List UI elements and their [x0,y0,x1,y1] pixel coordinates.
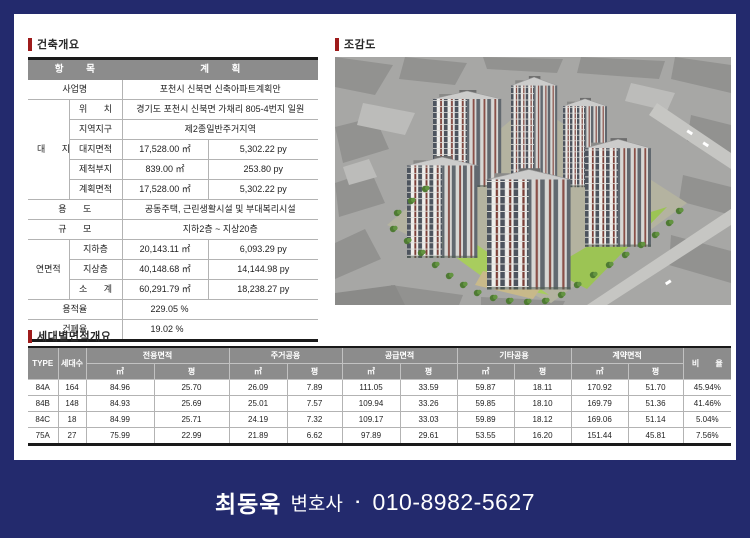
header-other-common: 기타공용 [457,347,571,364]
group-label-site: 대 지 [28,100,69,200]
cell-type: 84B [28,396,58,412]
table-row: 84C 18 84.99 25.71 24.19 7.32 109.17 33.… [28,412,731,428]
cell: 33.26 [400,396,457,412]
cell: 6.62 [287,428,342,445]
rendering-section-title: 조감도 [335,36,376,52]
red-accent-bar-icon [28,38,32,51]
row-value-py: 5,302.22 py [208,140,318,160]
cell: 25.01 [229,396,287,412]
row-value: 경기도 포천시 신북면 가채리 805-4번지 일원 [122,100,318,120]
table-row: 사업명 포천시 신북면 신축아파트계획안 [28,80,318,100]
row-label: 제척부지 [69,160,122,180]
table-header-row: TYPE 세대수 전용면적 주거공용 공급면적 기타공용 계약면적 비 율 [28,347,731,364]
table-subheader-row: ㎡ 평 ㎡ 평 ㎡ 평 ㎡ 평 ㎡ 평 [28,364,731,380]
footer-contact: 최동욱 변호사 ▪ 010-8982-5627 [0,480,750,524]
contact-name: 최동욱 [215,485,281,519]
table-row: 연면적 지하층 20,143.11 ㎡ 6,093.29 py [28,240,318,260]
cell: 59.85 [457,396,514,412]
cell-type: 75A [28,428,58,445]
unit-area-title-text: 세대별면적개요 [37,328,111,344]
row-value-py: 5,302.22 py [208,180,318,200]
cell: 18.10 [514,396,571,412]
cell: 84.96 [86,380,154,396]
row-value-m2: 60,291.79 ㎡ [122,280,208,300]
square-bullet-icon: ▪ [356,498,360,508]
flyer-page: { "sections": { "building_overview_title… [0,0,750,538]
aerial-rendering-image [335,57,731,305]
cell-households: 27 [58,428,86,445]
cell: 51.36 [628,396,683,412]
row-value-py: 6,093.29 py [208,240,318,260]
building-overview-title-text: 건축개요 [37,36,79,52]
cell: 22.99 [154,428,229,445]
table-row: 용 도 공동주택, 근린생활시설 및 부대복리시설 [28,200,318,220]
row-value: 19.02 % [122,320,318,341]
cell: 109.94 [342,396,400,412]
row-value-m2: 17,528.00 ㎡ [122,140,208,160]
table-row: 지상층 40,148.68 ㎡ 14,144.98 py [28,260,318,280]
row-label: 용적율 [28,300,122,320]
table-row: 규 모 지하2층 ~ 지상20층 [28,220,318,240]
header-plan: 계 획 [122,59,318,80]
table-row: 지역지구 제2종일반주거지역 [28,120,318,140]
red-accent-bar-icon [28,330,32,343]
cell-type: 84C [28,412,58,428]
cell: 111.05 [342,380,400,396]
contact-job-title: 변호사 [290,489,342,516]
red-accent-bar-icon [335,38,339,51]
subheader-py: 평 [400,364,457,380]
cell: 59.89 [457,412,514,428]
row-label: 지하층 [69,240,122,260]
row-value: 포천시 신북면 신축아파트계획안 [122,80,318,100]
aerial-rendering-svg [335,57,731,305]
row-value: 지하2층 ~ 지상20층 [122,220,318,240]
row-value: 229.05 % [122,300,318,320]
cell: 7.32 [287,412,342,428]
cell: 84.93 [86,396,154,412]
cell-ratio: 5.04% [683,412,731,428]
cell: 97.89 [342,428,400,445]
cell-ratio: 7.56% [683,428,731,445]
cell: 29.61 [400,428,457,445]
cell-households: 18 [58,412,86,428]
subheader-py: 평 [514,364,571,380]
row-label: 지역지구 [69,120,122,140]
row-value-m2: 40,148.68 ㎡ [122,260,208,280]
table-row: 용적율 229.05 % [28,300,318,320]
row-label: 위 치 [69,100,122,120]
subheader-py: 평 [628,364,683,380]
cell: 51.70 [628,380,683,396]
header-households: 세대수 [58,347,86,380]
row-value-m2: 20,143.11 ㎡ [122,240,208,260]
table-row: 계획면적 17,528.00 ㎡ 5,302.22 py [28,180,318,200]
header-residential-common: 주거공용 [229,347,342,364]
cell: 33.03 [400,412,457,428]
subheader-m2: ㎡ [571,364,628,380]
header-item: 항 목 [28,59,122,80]
unit-area-section-title: 세대별면적개요 [28,328,111,344]
table-row: 소 계 60,291.79 ㎡ 18,238.27 py [28,280,318,300]
header-contract: 계약면적 [571,347,683,364]
content-sheet: 건축개요 항 목 계 획 사업명 포천시 신북면 신축아파트계획안 대 지 위 … [14,14,736,460]
table-row: 84B 148 84.93 25.69 25.01 7.57 109.94 33… [28,396,731,412]
subheader-py: 평 [154,364,229,380]
cell: 84.99 [86,412,154,428]
cell-ratio: 45.94% [683,380,731,396]
row-label: 계획면적 [69,180,122,200]
cell: 24.19 [229,412,287,428]
row-value-py: 18,238.27 py [208,280,318,300]
row-label: 사업명 [28,80,122,100]
cell: 16.20 [514,428,571,445]
header-ratio: 비 율 [683,347,731,380]
cell: 169.06 [571,412,628,428]
cell: 25.70 [154,380,229,396]
unit-area-table: TYPE 세대수 전용면적 주거공용 공급면적 기타공용 계약면적 비 율 ㎡ … [28,346,731,446]
building-overview-section-title: 건축개요 [28,36,79,52]
cell: 109.17 [342,412,400,428]
table-row: 75A 27 75.99 22.99 21.89 6.62 97.89 29.6… [28,428,731,445]
cell: 151.44 [571,428,628,445]
row-value-py: 14,144.98 py [208,260,318,280]
cell: 18.11 [514,380,571,396]
building-overview-table: 항 목 계 획 사업명 포천시 신북면 신축아파트계획안 대 지 위 치 경기도… [28,57,318,342]
cell-ratio: 41.46% [683,396,731,412]
row-value-py: 253.80 py [208,160,318,180]
subheader-py: 평 [287,364,342,380]
group-label-floor-area: 연면적 [28,240,69,300]
rendering-title-text: 조감도 [344,36,376,52]
cell: 75.99 [86,428,154,445]
cell: 21.89 [229,428,287,445]
cell: 25.71 [154,412,229,428]
cell: 170.92 [571,380,628,396]
row-value-m2: 17,528.00 ㎡ [122,180,208,200]
subheader-m2: ㎡ [457,364,514,380]
cell: 25.69 [154,396,229,412]
cell: 59.87 [457,380,514,396]
cell: 51.14 [628,412,683,428]
cell: 53.55 [457,428,514,445]
row-value-m2: 839.00 ㎡ [122,160,208,180]
cell-households: 148 [58,396,86,412]
row-label: 소 계 [69,280,122,300]
cell: 33.59 [400,380,457,396]
row-value: 제2종일반주거지역 [122,120,318,140]
table-row: 제척부지 839.00 ㎡ 253.80 py [28,160,318,180]
subheader-m2: ㎡ [342,364,400,380]
table-header-row: 항 목 계 획 [28,59,318,80]
cell: 169.79 [571,396,628,412]
cell: 26.09 [229,380,287,396]
header-type: TYPE [28,347,58,380]
row-label: 규 모 [28,220,122,240]
cell: 18.12 [514,412,571,428]
row-label: 대지면적 [69,140,122,160]
header-exclusive: 전용면적 [86,347,229,364]
row-label: 용 도 [28,200,122,220]
cell: 7.57 [287,396,342,412]
row-value: 공동주택, 근린생활시설 및 부대복리시설 [122,200,318,220]
table-row: 대 지 위 치 경기도 포천시 신북면 가채리 805-4번지 일원 [28,100,318,120]
subheader-m2: ㎡ [86,364,154,380]
header-supply: 공급면적 [342,347,457,364]
table-row: 84A 164 84.96 25.70 26.09 7.89 111.05 33… [28,380,731,396]
cell: 7.89 [287,380,342,396]
table-row: 대지면적 17,528.00 ㎡ 5,302.22 py [28,140,318,160]
cell: 45.81 [628,428,683,445]
cell-households: 164 [58,380,86,396]
row-label: 지상층 [69,260,122,280]
subheader-m2: ㎡ [229,364,287,380]
contact-phone-number: 010-8982-5627 [372,489,535,516]
cell-type: 84A [28,380,58,396]
